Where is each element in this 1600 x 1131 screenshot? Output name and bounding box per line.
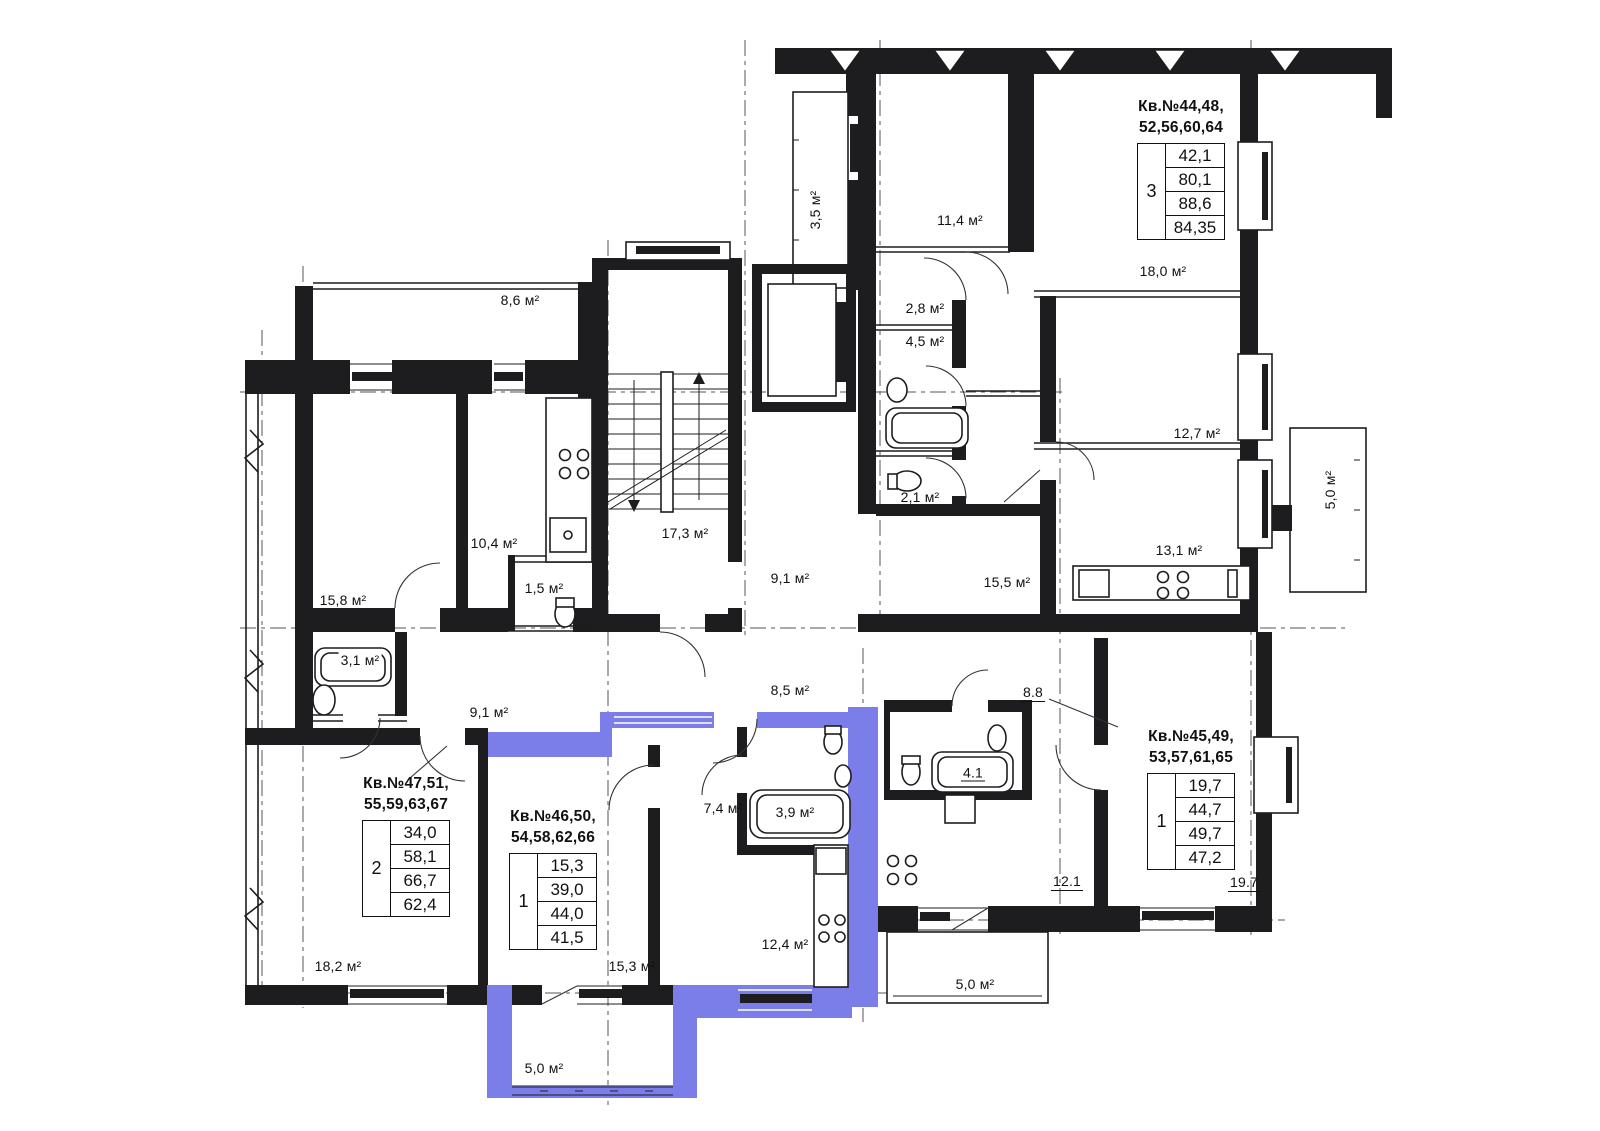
stairs [608,372,728,512]
area-value: 34,0 [391,821,449,845]
rooms-count: 2 [363,821,391,916]
room-area-label: 8,5 м² [771,682,810,698]
room-area-label: 5,0 м² [525,1060,564,1076]
room-area-label: 3,9 м² [774,804,817,820]
area-value: 66,7 [391,869,449,893]
rooms-count: 1 [510,854,538,949]
room-area-label: 4,5 м² [906,333,945,349]
room-area-label: 5,0 м² [1322,471,1338,510]
apartment-title: Кв.№44,48, [1095,96,1267,117]
room-area-label: 3,1 м² [339,652,382,668]
room-area-label: 1,5 м² [525,580,564,596]
room-area-label: 15,3 м² [609,958,656,974]
room-area-label: 4.1 [961,765,985,782]
room-area-label: 9,1 м² [771,570,810,586]
room-area-label: 8.8 [1021,684,1045,702]
room-area-label: 18,0 м² [1140,263,1187,279]
apartment-title: 53,57,61,65 [1105,747,1277,768]
apartment-area-table: 1 15,3 39,0 44,0 41,5 [509,853,597,950]
room-area-label: 17,3 м² [662,525,709,541]
room-area-label: 8,6 м² [501,292,540,308]
room-area-label: 3,5 м² [807,191,823,230]
apartment-title: Кв.№47,51, [320,773,492,794]
apartment-card-45: Кв.№45,49, 53,57,61,65 1 19,7 44,7 49,7 … [1105,726,1277,870]
area-value: 58,1 [391,845,449,869]
room-area-label: 5,0 м² [956,976,995,992]
room-area-label: 15,5 м² [984,574,1031,590]
room-area-label: 15,8 м² [320,592,367,608]
area-value: 41,5 [538,926,596,949]
area-value: 84,35 [1166,216,1224,239]
apartment-area-table: 2 34,0 58,1 66,7 62,4 [362,820,450,917]
area-value: 88,6 [1166,192,1224,216]
apartment-card-44: Кв.№44,48, 52,56,60,64 3 42,1 80,1 88,6 … [1095,96,1267,240]
area-value: 80,1 [1166,168,1224,192]
area-value: 39,0 [538,878,596,902]
area-value: 62,4 [391,893,449,916]
apartment-area-table: 3 42,1 80,1 88,6 84,35 [1137,143,1225,240]
area-value: 47,2 [1176,846,1234,869]
rooms-count: 3 [1138,144,1166,239]
apartment-title: 54,58,62,66 [467,827,639,848]
room-area-label: 18,2 м² [315,958,362,974]
room-area-label: 12,4 м² [762,936,809,952]
room-area-label: 2,1 м² [901,489,940,505]
apartment-area-table: 1 19,7 44,7 49,7 47,2 [1147,773,1235,870]
apartment-card-46[interactable]: Кв.№46,50, 54,58,62,66 1 15,3 39,0 44,0 … [467,806,639,950]
area-value: 49,7 [1176,822,1234,846]
area-value: 44,0 [538,902,596,926]
area-value: 19,7 [1176,774,1234,798]
apartment-title: Кв.№45,49, [1105,726,1277,747]
area-value: 15,3 [538,854,596,878]
room-area-label: 12.1 [1051,873,1083,891]
floor-plan: 3,5 м² 11,4 м² 8,6 м² 2,8 м² 4,5 м² 18,0… [0,0,1600,1131]
room-area-label: 19.7 [1228,874,1260,892]
room-area-label: 12,7 м² [1174,425,1221,441]
room-area-label: 11,4 м² [937,212,983,228]
room-area-label: 7,4 м² [704,800,743,816]
room-area-label: 13,1 м² [1156,542,1203,558]
floor-plan-drawing [0,0,1600,1131]
room-area-label: 9,1 м² [470,704,509,720]
rooms-count: 1 [1148,774,1176,869]
apartment-title: 52,56,60,64 [1095,117,1267,138]
apartment-title: Кв.№46,50, [467,806,639,827]
room-area-label: 2,8 м² [906,300,945,316]
area-value: 44,7 [1176,798,1234,822]
area-value: 42,1 [1166,144,1224,168]
room-area-label: 10,4 м² [471,535,518,551]
